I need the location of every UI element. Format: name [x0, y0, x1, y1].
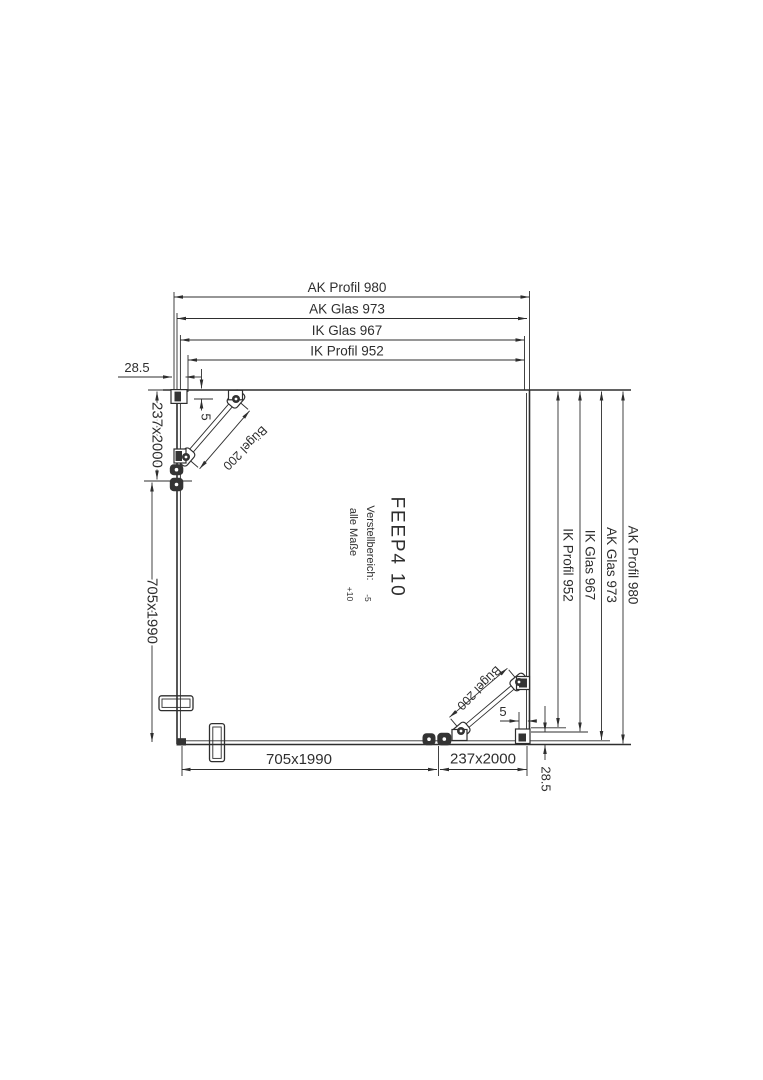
wall-bracket-top-left-dark	[175, 392, 182, 402]
dim-label-ak-glas-right: AK Glas 973	[604, 527, 619, 603]
dim-label-panel-bottom-right: 237x2000	[450, 751, 516, 768]
drawing-page: AK Profil 980 AK Glas 973 IK Glas 967 IK…	[0, 0, 763, 1080]
dim-label-ak-profil-right: AK Profil 980	[626, 526, 641, 605]
adjustment-note-line2-tolerance: +10	[345, 587, 355, 602]
handle-bottom-wall-inner	[213, 727, 221, 758]
brace-label-bottom-right: Bügel 200	[454, 663, 504, 713]
brace-pivot-upper-hole	[235, 398, 238, 401]
dim-label-ak-glas-top: AK Glas 973	[309, 302, 385, 317]
hinge-left-wall-upper-hole	[175, 468, 179, 472]
adjustment-note-line1-tolerance: -5	[363, 594, 373, 602]
dimension-lines-top: AK Profil 980 AK Glas 973 IK Glas 967 IK…	[174, 280, 530, 360]
dim-label-panel-left-upper: 237x2000	[149, 402, 166, 468]
handle-left-wall-inner	[162, 699, 190, 707]
dimension-lines-left: 237x2000 705x1990	[144, 392, 166, 743]
brace-pivot-lower-hole	[185, 456, 188, 459]
dim-label-ik-glas-right: IK Glas 967	[583, 530, 598, 601]
dimension-offset-bottom-right: 28.5	[539, 706, 554, 792]
adjustment-note-line2: alle Maße	[347, 508, 359, 556]
hinge-bottom-wall-left-hole	[427, 737, 431, 741]
model-annotation: FEEP4 10 Verstellbereich: -5 alle Maße +…	[345, 496, 408, 602]
dim-label-ik-profil-right: IK Profil 952	[561, 528, 576, 602]
dim-label-ak-profil-top: AK Profil 980	[308, 280, 387, 295]
wall-bracket-bottom-right-dark	[519, 734, 527, 742]
dimension-offset-top-left: 28.5	[118, 360, 201, 377]
brace-label-top-left: Bügel 200	[220, 423, 270, 473]
dimension-gap-bottom-right: 5	[499, 704, 536, 721]
dim-label-panel-bottom-left: 705x1990	[266, 751, 332, 768]
corner-joint-bottom-left	[177, 738, 187, 745]
dim-label-gap-top-left: 5	[199, 413, 214, 420]
hinge-bottom-wall-right-hole	[443, 737, 447, 741]
handles	[159, 696, 225, 762]
dimension-lines-right: IK Profil 952 IK Glas 967 AK Glas 973 AK…	[558, 392, 641, 744]
brace-pivot-lower-hole	[460, 730, 463, 733]
dim-label-offset-bottom-right: 28.5	[539, 766, 554, 791]
handle-bottom-wall	[210, 724, 225, 762]
dim-label-panel-left-lower: 705x1990	[144, 578, 161, 644]
brace-wall-mount-lower-dark	[176, 451, 183, 461]
model-name: FEEP4 10	[387, 496, 408, 597]
brace-bar-lines	[189, 403, 233, 453]
dimension-lines-bottom: 705x1990 237x2000	[182, 751, 527, 770]
brace-pivot-upper-hole	[518, 681, 521, 684]
technical-drawing: AK Profil 980 AK Glas 973 IK Glas 967 IK…	[0, 0, 763, 1080]
dim-label-ik-glas-top: IK Glas 967	[312, 323, 383, 338]
dim-label-ik-profil-top: IK Profil 952	[310, 344, 384, 359]
handle-left-wall	[159, 696, 193, 711]
brace-top-left: Bügel 200	[174, 389, 270, 473]
dim-label-offset-top-left: 28.5	[124, 360, 149, 375]
adjustment-note-line1: Verstellbereich:	[364, 505, 376, 580]
hinge-left-wall-lower-hole	[175, 483, 179, 487]
dim-label-gap-bottom-right: 5	[499, 704, 506, 719]
